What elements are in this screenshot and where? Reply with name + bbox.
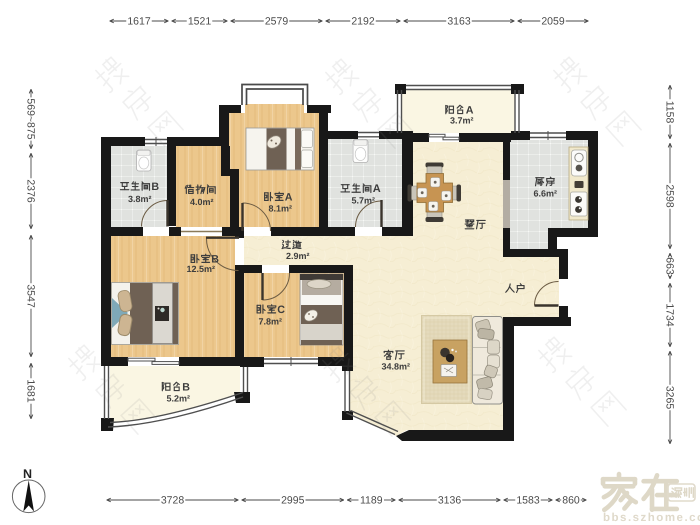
svg-text:663: 663: [664, 257, 676, 275]
svg-text:6.6m²: 6.6m²: [534, 189, 558, 199]
svg-text:3.8m²: 3.8m²: [128, 194, 152, 204]
svg-text:34.8m²: 34.8m²: [382, 362, 411, 372]
svg-text:2192: 2192: [351, 15, 375, 27]
svg-text:5.2m²: 5.2m²: [167, 394, 191, 404]
svg-text:3163: 3163: [447, 15, 471, 27]
svg-text:8.1m²: 8.1m²: [269, 204, 293, 214]
svg-text:4.0m²: 4.0m²: [190, 197, 214, 207]
svg-text:2376: 2376: [25, 179, 37, 203]
svg-text:3728: 3728: [161, 494, 185, 506]
svg-text:1583: 1583: [516, 494, 540, 506]
svg-text:3136: 3136: [438, 494, 462, 506]
svg-text:1734: 1734: [664, 303, 676, 327]
svg-text:1158: 1158: [664, 101, 676, 124]
svg-text:1189: 1189: [360, 494, 383, 506]
svg-text:2.9m²: 2.9m²: [286, 251, 310, 261]
svg-text:2598: 2598: [664, 184, 676, 208]
svg-text:B: B: [151, 181, 159, 193]
svg-text:1681: 1681: [25, 379, 37, 403]
svg-text:C: C: [277, 304, 285, 316]
svg-text:5.7m²: 5.7m²: [352, 196, 376, 206]
svg-text:3.7m²: 3.7m²: [450, 116, 474, 126]
svg-text:1521: 1521: [188, 15, 212, 27]
svg-text:860: 860: [562, 494, 580, 506]
svg-text:3265: 3265: [664, 386, 676, 410]
svg-text:N: N: [23, 467, 32, 481]
svg-text:2579: 2579: [265, 15, 289, 27]
svg-text:A: A: [285, 191, 293, 203]
svg-text:A: A: [466, 104, 474, 116]
svg-text:2995: 2995: [281, 494, 305, 506]
svg-text:2059: 2059: [541, 15, 565, 27]
svg-text:569~875: 569~875: [25, 98, 37, 139]
svg-text:3547: 3547: [25, 284, 37, 308]
svg-text:B: B: [182, 381, 190, 393]
svg-text:7.8m²: 7.8m²: [259, 317, 283, 327]
svg-text:bbs.szhome.com: bbs.szhome.com: [603, 512, 700, 524]
svg-text:12.5m²: 12.5m²: [187, 264, 216, 274]
svg-text:A: A: [373, 183, 381, 195]
svg-text:1617: 1617: [127, 15, 151, 27]
